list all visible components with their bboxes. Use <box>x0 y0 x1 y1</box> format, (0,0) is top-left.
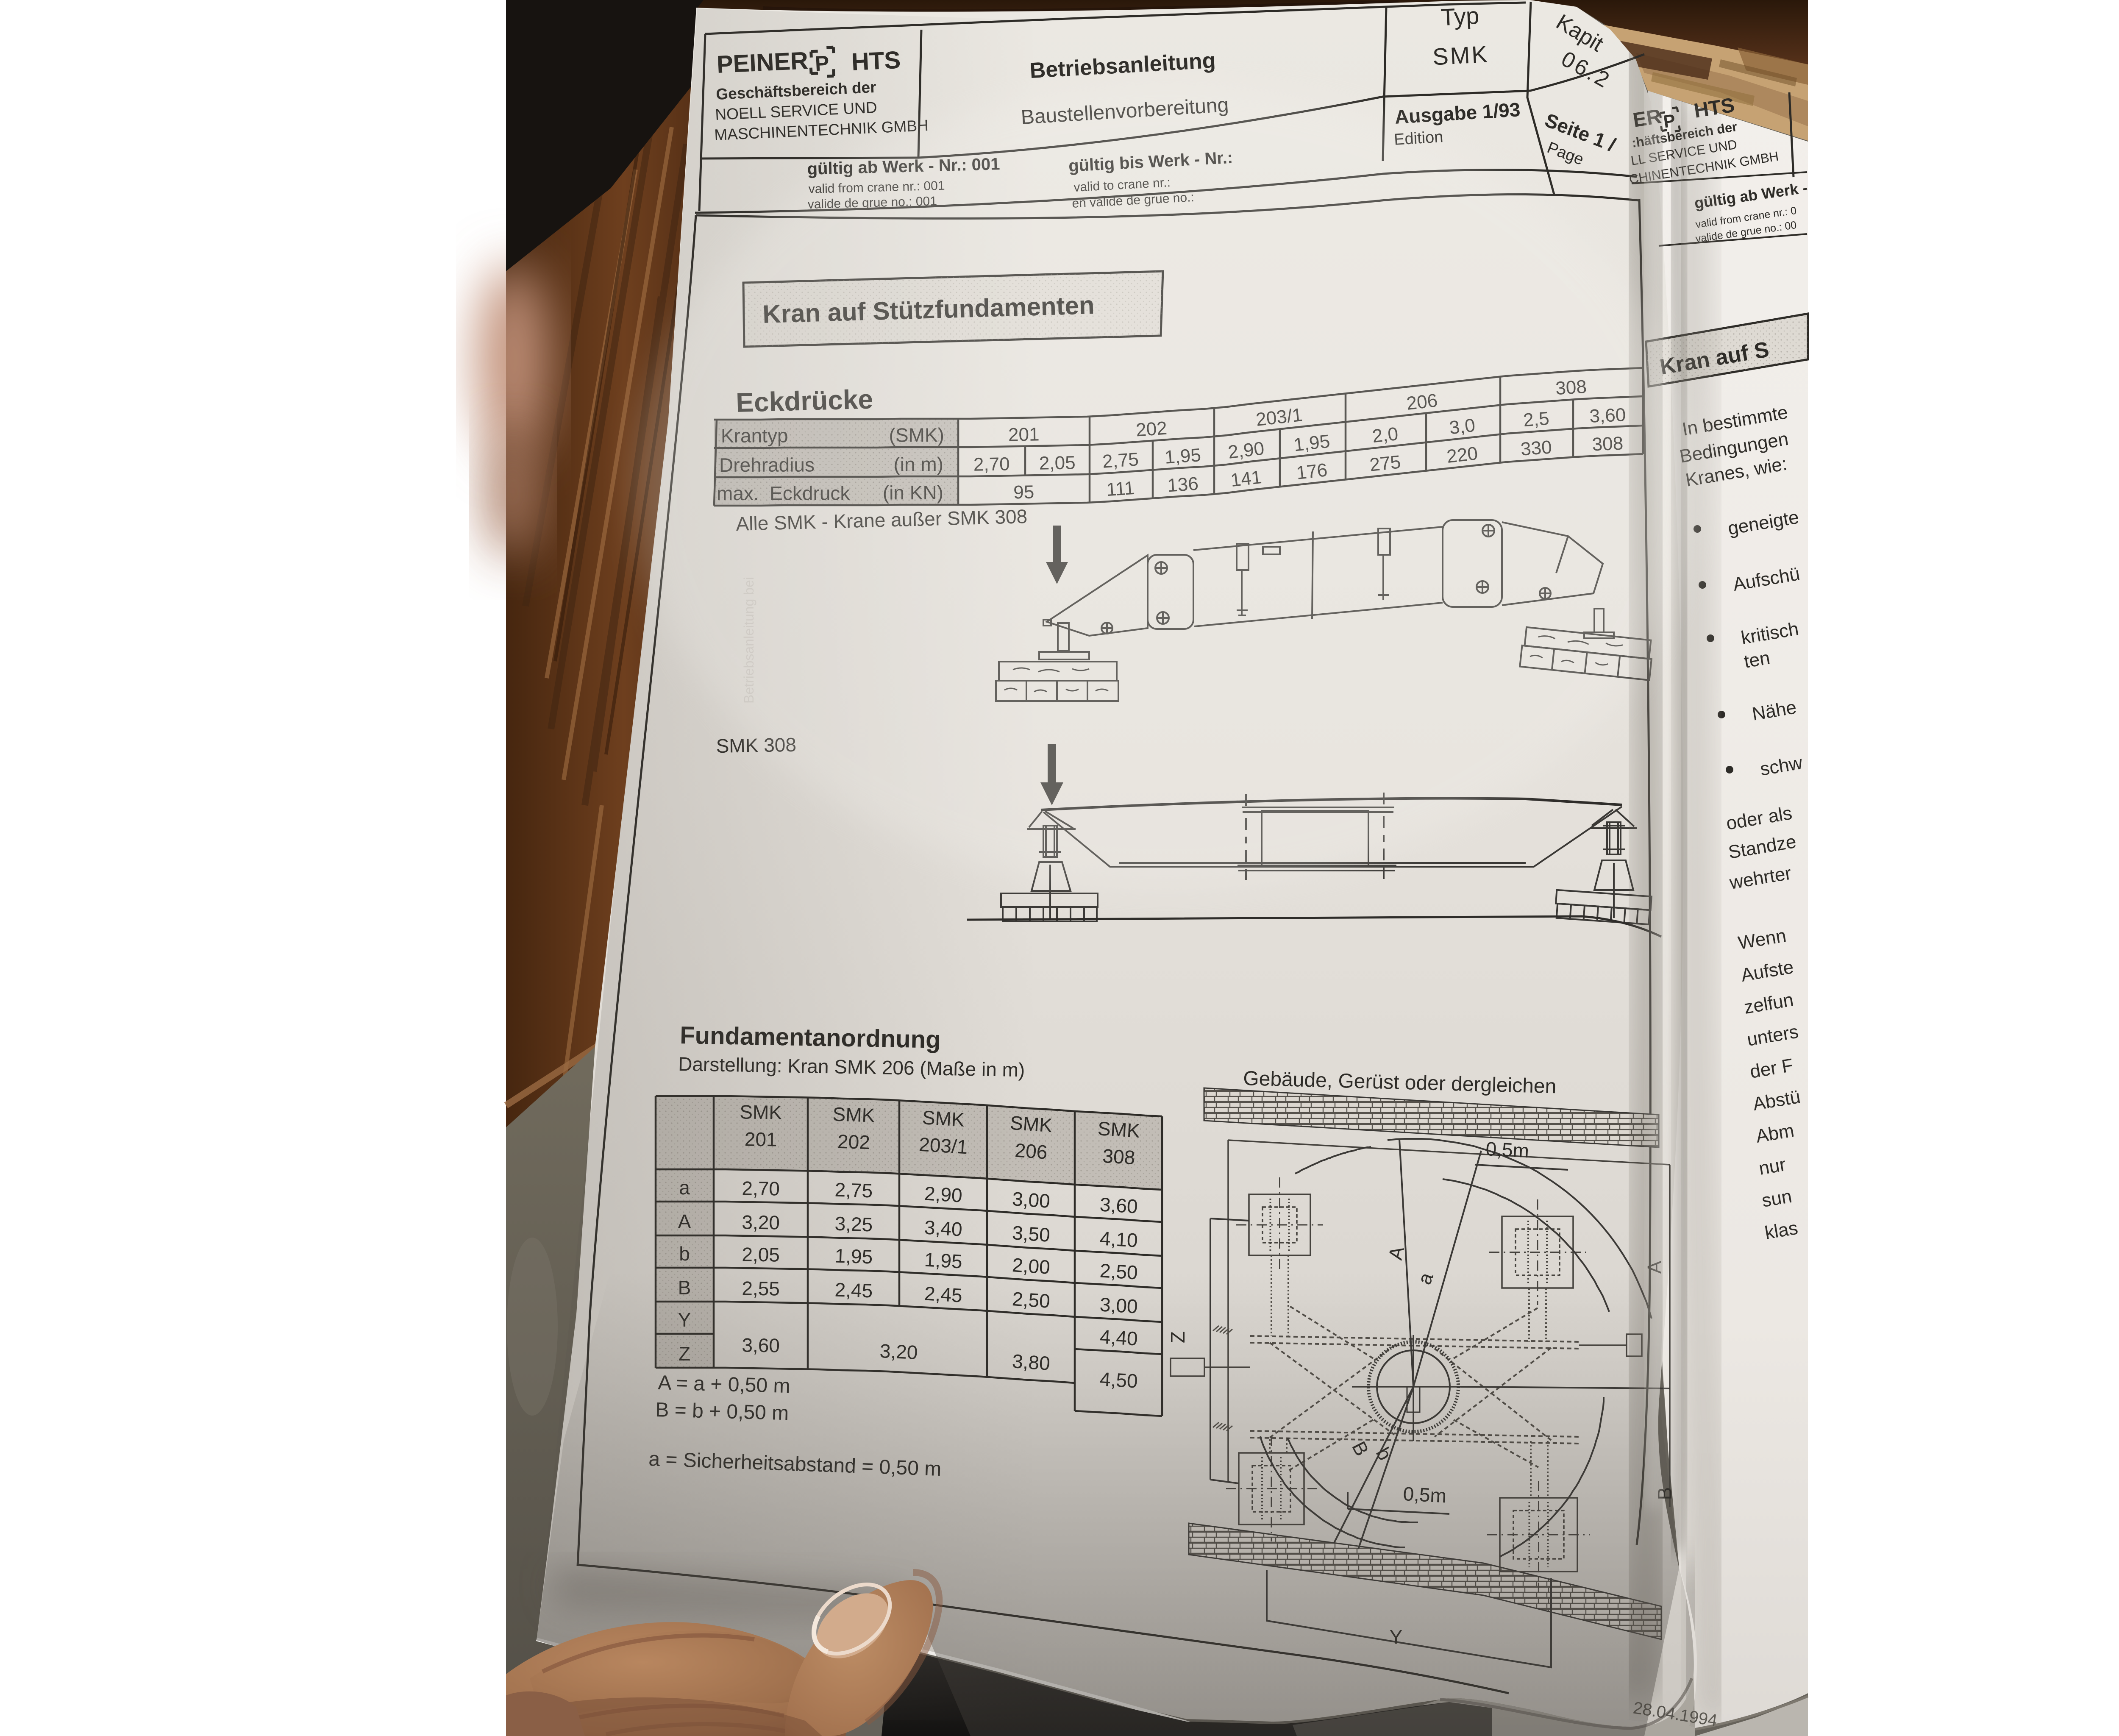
svg-text:nur: nur <box>1757 1154 1788 1179</box>
svg-text:SMK: SMK <box>1097 1117 1141 1142</box>
svg-text:Typ: Typ <box>1440 2 1479 31</box>
svg-text:0,5m: 0,5m <box>1485 1138 1529 1162</box>
svg-text:ten: ten <box>1743 647 1771 672</box>
svg-text:SMK: SMK <box>1432 41 1490 70</box>
svg-text:308: 308 <box>1102 1145 1136 1168</box>
svg-text:4,10: 4,10 <box>1099 1227 1138 1251</box>
svg-text:3,60: 3,60 <box>1099 1193 1138 1217</box>
